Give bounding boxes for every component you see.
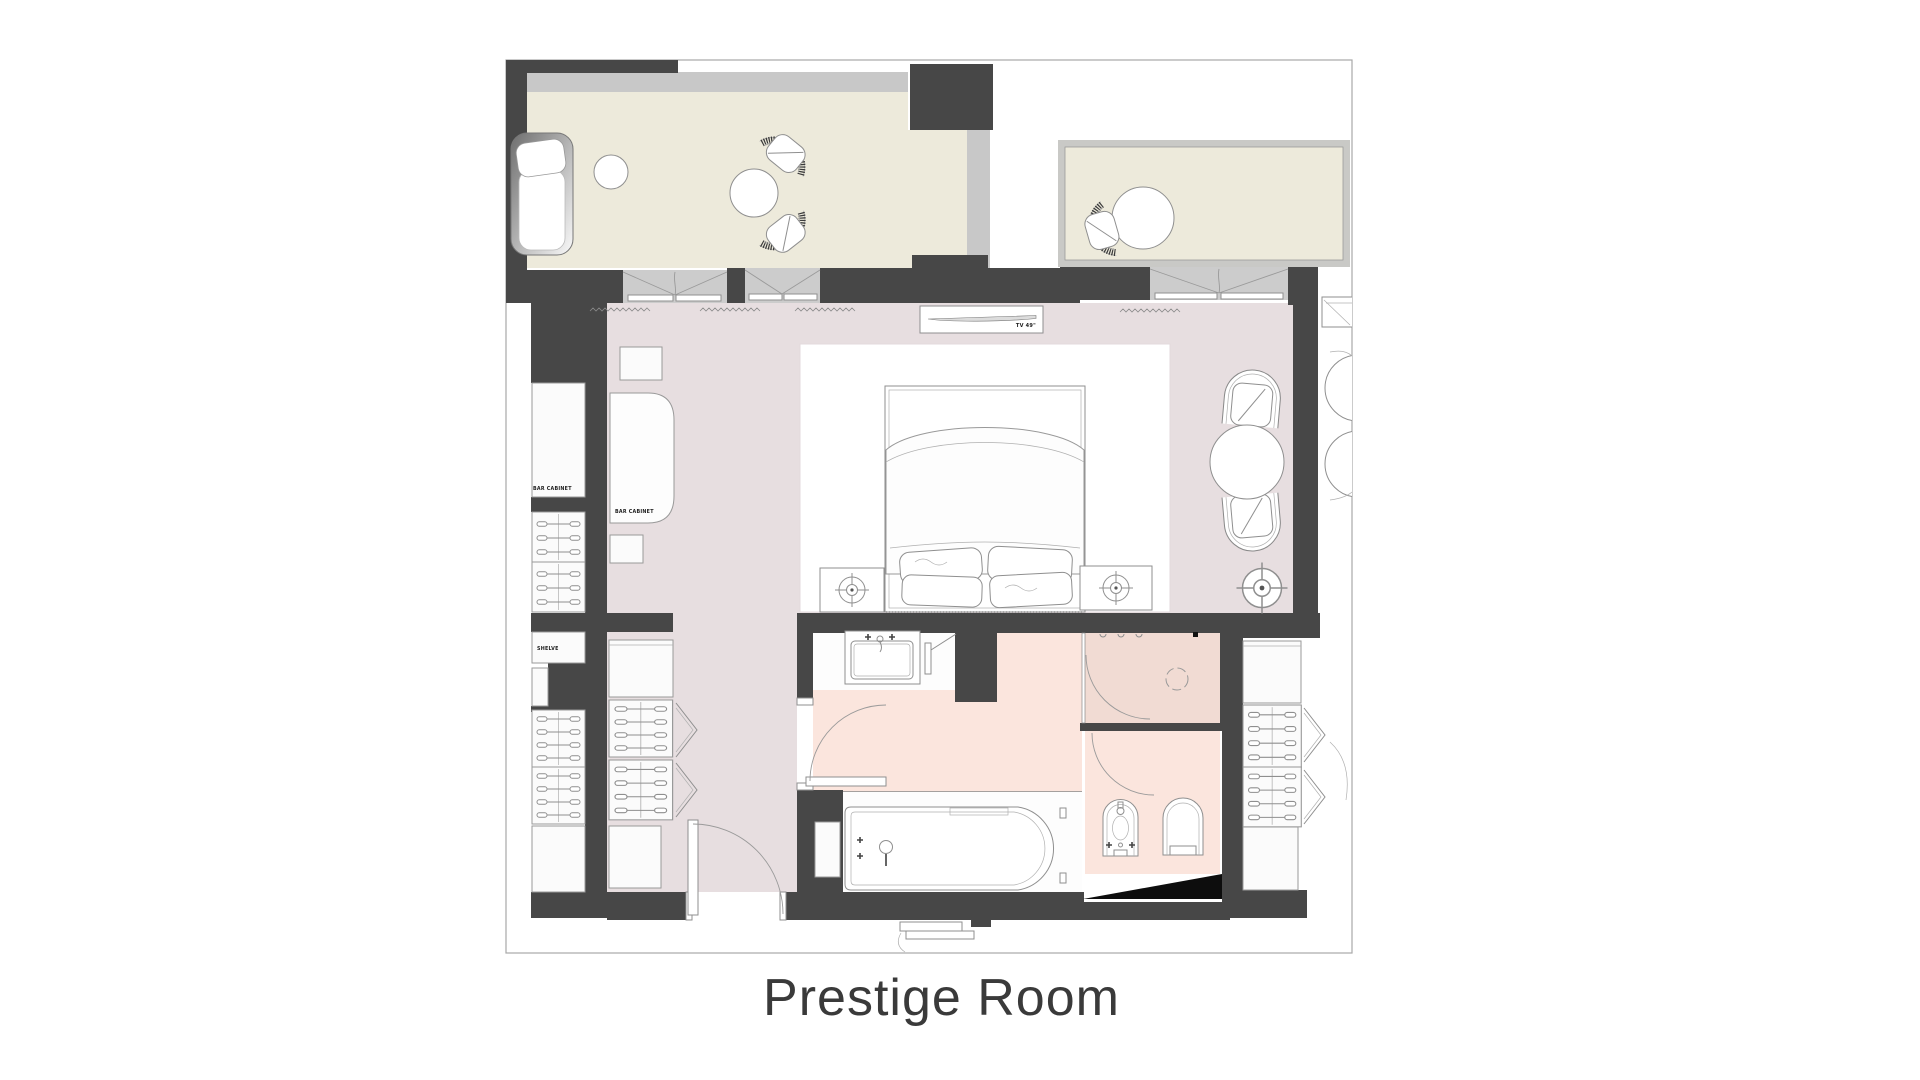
balcony-railing-band [527, 72, 908, 92]
floorplan-drawing: BAR CABINET SHELVE BAR CABINET [0, 0, 1920, 1080]
bathroom-top-wall [797, 613, 1230, 633]
sliding-door-left-2 [745, 268, 820, 303]
drawer-unit [1243, 767, 1301, 827]
toilet [1163, 798, 1203, 855]
closet-box [609, 640, 673, 697]
wall-cabinet [620, 347, 662, 380]
nightstand-right [1080, 566, 1152, 610]
balcony-railing-right [967, 130, 990, 268]
drawer-unit [532, 562, 585, 612]
sliding-door-left-1 [623, 270, 727, 303]
shelve-label: SHELVE [537, 646, 559, 652]
shower-wc-divider [1080, 723, 1222, 731]
sliding-door-right [1150, 267, 1288, 300]
console [1322, 297, 1356, 327]
drawer-unit [532, 512, 585, 562]
bar-cabinet-closet-label: BAR CABINET [533, 486, 572, 492]
tv-label: TV 49" [1016, 323, 1036, 329]
corridor-left-wall [585, 303, 607, 892]
chaise-longue [511, 133, 573, 255]
drawer-unit [609, 760, 673, 820]
tall-cabinet [532, 668, 548, 706]
vanity [845, 631, 920, 684]
bathroom-pillar [955, 633, 997, 702]
door-leaf [806, 777, 886, 786]
drawer-unit [609, 700, 673, 757]
bidet [1103, 800, 1138, 857]
adjacent-area-furniture [1322, 297, 1391, 500]
shower-floor [1085, 633, 1220, 723]
tv-shelf: TV 49" [920, 306, 1043, 333]
left-balcony-floor [527, 92, 908, 268]
chair-partial [1325, 431, 1391, 497]
side-table [1210, 425, 1284, 499]
nightstand-left [820, 568, 884, 612]
left-closet-column: BAR CABINET SHELVE [532, 383, 585, 892]
bathtub [845, 807, 1054, 890]
door-leaf [688, 820, 698, 915]
balcony-table [730, 169, 778, 217]
drawer-unit [1243, 705, 1301, 767]
bar-cabinet-room [610, 393, 674, 523]
balcony-pier [910, 64, 993, 130]
drawer-unit [532, 710, 585, 767]
drawer-unit [532, 767, 585, 824]
plan-title: Prestige Room [531, 968, 1352, 1028]
bar-cabinet-closet [532, 383, 585, 497]
bar-cabinet-room-label: BAR CABINET [615, 509, 654, 515]
balcony-table [1112, 187, 1174, 249]
closet-box [532, 826, 585, 892]
closet-box [1243, 827, 1298, 890]
left-balcony-floor-ext [907, 130, 967, 268]
closet-box [609, 826, 661, 888]
bedroom-right-wall [1293, 305, 1318, 638]
floorplan-screenshot: BAR CABINET SHELVE BAR CABINET [0, 0, 1920, 1080]
shelve-wall-stub [531, 613, 673, 632]
small-cabinet [610, 535, 643, 563]
closet-box [1243, 641, 1301, 703]
shower-glass [1082, 633, 1085, 723]
tub-niche [815, 822, 840, 877]
ottoman [594, 155, 628, 189]
chair-partial [1325, 355, 1391, 421]
double-bed [885, 386, 1085, 612]
